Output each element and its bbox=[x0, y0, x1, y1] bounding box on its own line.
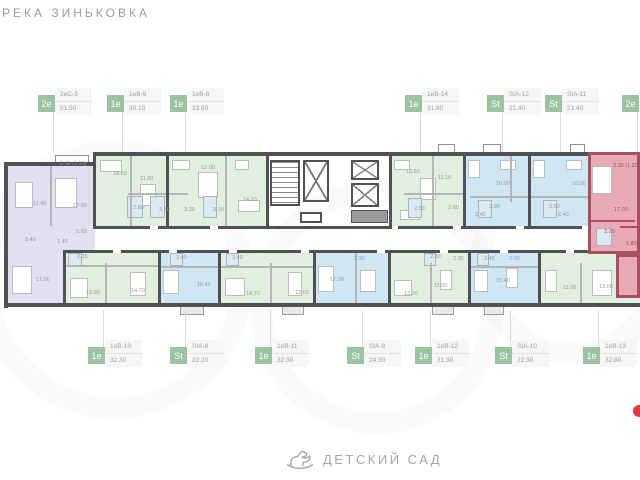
unit-info-box: StA-924.30 bbox=[364, 340, 401, 367]
apartment-unit[interactable] bbox=[616, 254, 640, 298]
leader-line bbox=[502, 112, 503, 152]
partition-wall bbox=[65, 265, 158, 267]
leader-line bbox=[420, 112, 421, 152]
partition-wall bbox=[50, 166, 52, 226]
unit-type-badge: 1е bbox=[107, 95, 124, 112]
unit-info-box: StA-822.20 bbox=[187, 340, 224, 367]
wall bbox=[95, 226, 150, 229]
leader-line bbox=[362, 310, 363, 347]
partition-wall bbox=[470, 196, 528, 198]
partition-wall bbox=[221, 266, 313, 268]
kindergarten-label: ДЕТСКИЙ САД bbox=[323, 452, 442, 467]
unit-type-badge: 2е bbox=[38, 95, 55, 112]
wall bbox=[461, 226, 516, 229]
unit-area: 22.20 bbox=[187, 354, 224, 367]
furniture bbox=[235, 160, 249, 170]
leader-line bbox=[185, 112, 186, 152]
furniture bbox=[15, 182, 33, 208]
furniture bbox=[420, 178, 436, 200]
floorplan-page: РЕКА ЗИНЬКОВКА 2еС-351.502е1еВ-930.101е1… bbox=[0, 0, 640, 480]
unit-name: 1еВ-13 bbox=[600, 340, 637, 354]
unit-name: 1еВ-14 bbox=[422, 88, 459, 102]
wall bbox=[468, 253, 471, 303]
wall bbox=[4, 303, 640, 307]
unit-type-badge: 1е bbox=[583, 347, 600, 364]
unit-type-badge: St bbox=[487, 95, 504, 112]
wall bbox=[388, 253, 391, 303]
partition-wall bbox=[225, 156, 227, 226]
leader-line bbox=[560, 112, 561, 152]
unit-type-badge: St bbox=[495, 347, 512, 364]
unit-info-box: StA-1022.30 bbox=[512, 340, 549, 367]
furniture bbox=[12, 266, 32, 294]
partition-wall bbox=[160, 266, 218, 268]
leader-line bbox=[598, 310, 599, 347]
partition-wall bbox=[430, 263, 432, 303]
rocking-horse-icon bbox=[285, 448, 315, 470]
furniture bbox=[566, 160, 582, 170]
unit-name: 2еС-3 bbox=[55, 88, 92, 102]
wall bbox=[313, 253, 316, 303]
unit-type-badge: 1е bbox=[170, 95, 187, 112]
balcony bbox=[282, 306, 304, 315]
partition-wall bbox=[590, 220, 635, 222]
unit-area: 32.80 bbox=[600, 354, 637, 367]
elevator-shaft bbox=[351, 160, 379, 180]
unit-info-box: StA-1121.40 bbox=[562, 88, 599, 115]
unit-type-badge: St bbox=[170, 347, 187, 364]
furniture bbox=[172, 160, 190, 170]
furniture bbox=[360, 270, 376, 292]
wall bbox=[93, 156, 96, 229]
furniture bbox=[545, 270, 557, 292]
leader-line bbox=[103, 310, 104, 347]
elevator-shaft bbox=[351, 183, 379, 207]
leader-line bbox=[637, 112, 638, 152]
furniture bbox=[500, 160, 516, 170]
unit-info-box: 1еВ-930.10 bbox=[124, 88, 161, 115]
leader-line bbox=[53, 112, 54, 152]
unit-name: StA-9 bbox=[364, 340, 401, 354]
unit-area: 24.30 bbox=[364, 354, 401, 367]
unit-area: 32.30 bbox=[272, 354, 309, 367]
unit-area: 21.40 bbox=[562, 102, 599, 115]
wall bbox=[166, 156, 169, 229]
unit-info-box: 1еВ-1431.80 bbox=[422, 88, 459, 115]
unit-info-box: StA-1221.40 bbox=[504, 88, 541, 115]
wall bbox=[218, 226, 266, 229]
unit-type-badge: St bbox=[347, 347, 364, 364]
unit-area: 32.30 bbox=[105, 354, 142, 367]
partition-wall bbox=[270, 263, 272, 303]
partition-wall bbox=[105, 263, 107, 303]
wall bbox=[448, 250, 500, 253]
unit-name: 1еВ-11 bbox=[272, 340, 309, 354]
unit-type-badge: 1е bbox=[405, 95, 422, 112]
partition-wall bbox=[404, 193, 464, 195]
unit-info-box: 1еВ-1132.30 bbox=[272, 340, 309, 367]
wall bbox=[385, 250, 440, 253]
furniture bbox=[198, 172, 218, 198]
river-label: РЕКА ЗИНЬКОВКА bbox=[2, 6, 150, 20]
furniture bbox=[163, 270, 179, 294]
unit-name: 1еВ-8 bbox=[187, 88, 224, 102]
elevator-shaft bbox=[303, 160, 329, 202]
unit-name: 1еВ-9 bbox=[124, 88, 161, 102]
wall bbox=[528, 156, 531, 229]
unit-area: 22.30 bbox=[512, 354, 549, 367]
wall bbox=[309, 250, 377, 253]
wall bbox=[158, 253, 161, 303]
unit-area: 51.50 bbox=[55, 102, 92, 115]
wall bbox=[4, 162, 8, 308]
unit-type-badge: St bbox=[545, 95, 562, 112]
kindergarten-callout: ДЕТСКИЙ САД bbox=[285, 448, 442, 470]
furniture bbox=[474, 270, 488, 292]
unit-name: StA-10 bbox=[512, 340, 549, 354]
wall bbox=[463, 156, 466, 229]
unit-name: StA-11 bbox=[562, 88, 599, 102]
unit-area: 31.80 bbox=[422, 102, 459, 115]
leader-line bbox=[270, 310, 271, 347]
unit-area: 31.30 bbox=[432, 354, 469, 367]
balcony bbox=[484, 306, 504, 315]
wall bbox=[508, 250, 566, 253]
furniture bbox=[533, 160, 545, 178]
balcony bbox=[180, 306, 204, 315]
service-room bbox=[300, 212, 322, 223]
partition-wall bbox=[128, 193, 188, 195]
service-shaft bbox=[351, 210, 388, 223]
unit-name: 1еВ-10 bbox=[105, 340, 142, 354]
wall bbox=[177, 250, 229, 253]
unit-info-box: 1еВ-1032.30 bbox=[105, 340, 142, 367]
unit-area: 21.40 bbox=[504, 102, 541, 115]
leader-line bbox=[185, 310, 186, 347]
furniture bbox=[592, 270, 612, 296]
partition-wall bbox=[530, 196, 588, 198]
wall bbox=[218, 253, 221, 303]
notification-badge bbox=[633, 405, 640, 417]
partition-wall bbox=[130, 156, 132, 226]
wall bbox=[63, 250, 113, 253]
wall bbox=[266, 226, 392, 229]
partition-wall bbox=[620, 226, 638, 228]
staircase bbox=[270, 160, 300, 206]
unit-type-badge: 1е bbox=[88, 347, 105, 364]
wall bbox=[266, 156, 269, 229]
furniture bbox=[225, 278, 245, 296]
wall bbox=[398, 226, 453, 229]
furniture bbox=[592, 166, 612, 194]
balcony bbox=[432, 306, 454, 315]
wall bbox=[574, 250, 588, 253]
wall bbox=[389, 156, 392, 229]
unit-type-badge: 2е bbox=[622, 95, 639, 112]
partition-wall bbox=[432, 156, 434, 226]
wall bbox=[158, 226, 210, 229]
unit-area: 30.10 bbox=[124, 102, 161, 115]
unit-info-box: 1еВ-1231.30 bbox=[432, 340, 469, 367]
wall bbox=[121, 250, 169, 253]
unit-info-box: 2еС-351.50 bbox=[55, 88, 92, 115]
unit-area: 33.60 bbox=[187, 102, 224, 115]
unit-name: 1еВ-12 bbox=[432, 340, 469, 354]
partition-wall bbox=[580, 263, 582, 303]
leader-line bbox=[430, 310, 431, 347]
furniture bbox=[468, 160, 480, 178]
unit-type-badge: 1е bbox=[415, 347, 432, 364]
unit-info-box: 1еВ-1332.80 bbox=[600, 340, 637, 367]
unit-type-badge: 1е bbox=[255, 347, 272, 364]
unit-name: StA-12 bbox=[504, 88, 541, 102]
wall bbox=[538, 253, 541, 303]
wall bbox=[237, 250, 301, 253]
wall bbox=[63, 253, 66, 303]
partition-wall bbox=[471, 266, 538, 268]
wall bbox=[524, 226, 582, 229]
unit-info-box: 1еВ-833.60 bbox=[187, 88, 224, 115]
leader-line bbox=[510, 310, 511, 347]
unit-name: StA-8 bbox=[187, 340, 224, 354]
